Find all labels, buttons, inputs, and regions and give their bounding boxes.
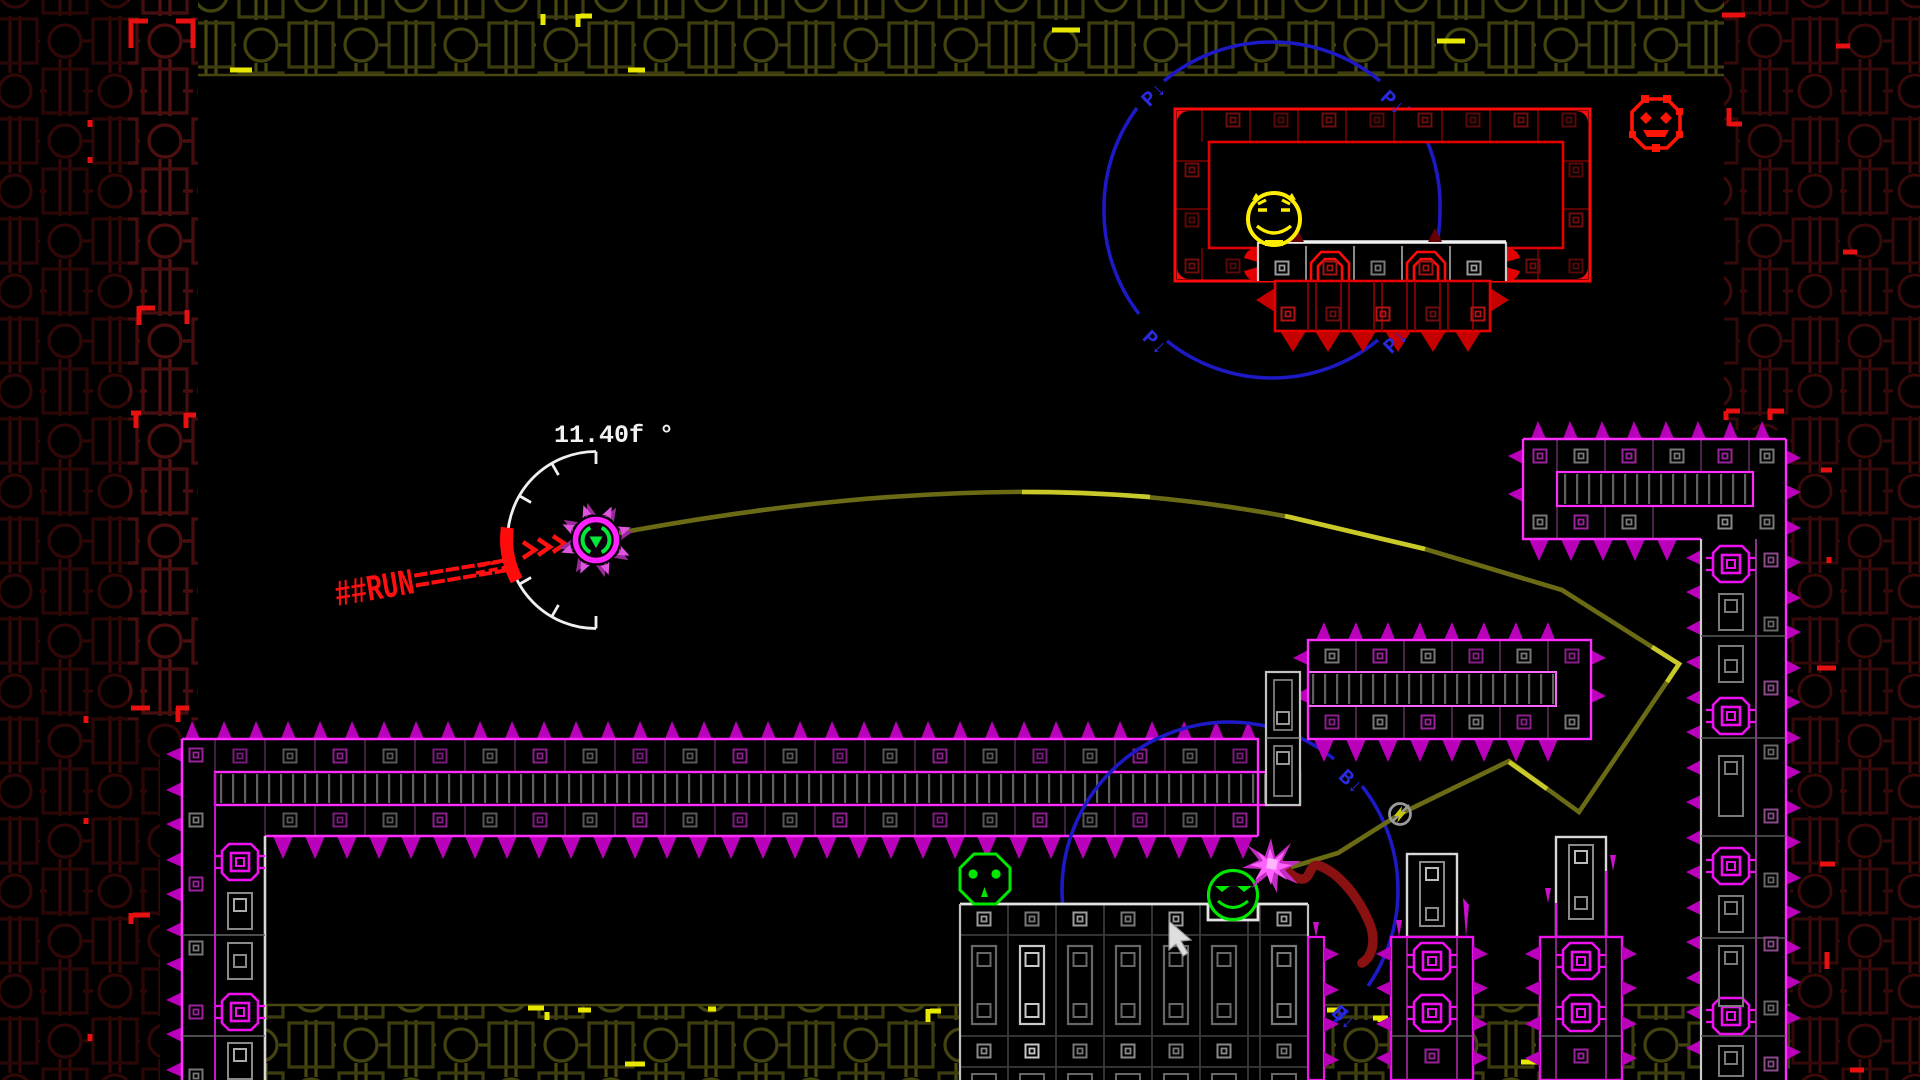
svg-text:11.40f °: 11.40f ° bbox=[554, 421, 674, 450]
